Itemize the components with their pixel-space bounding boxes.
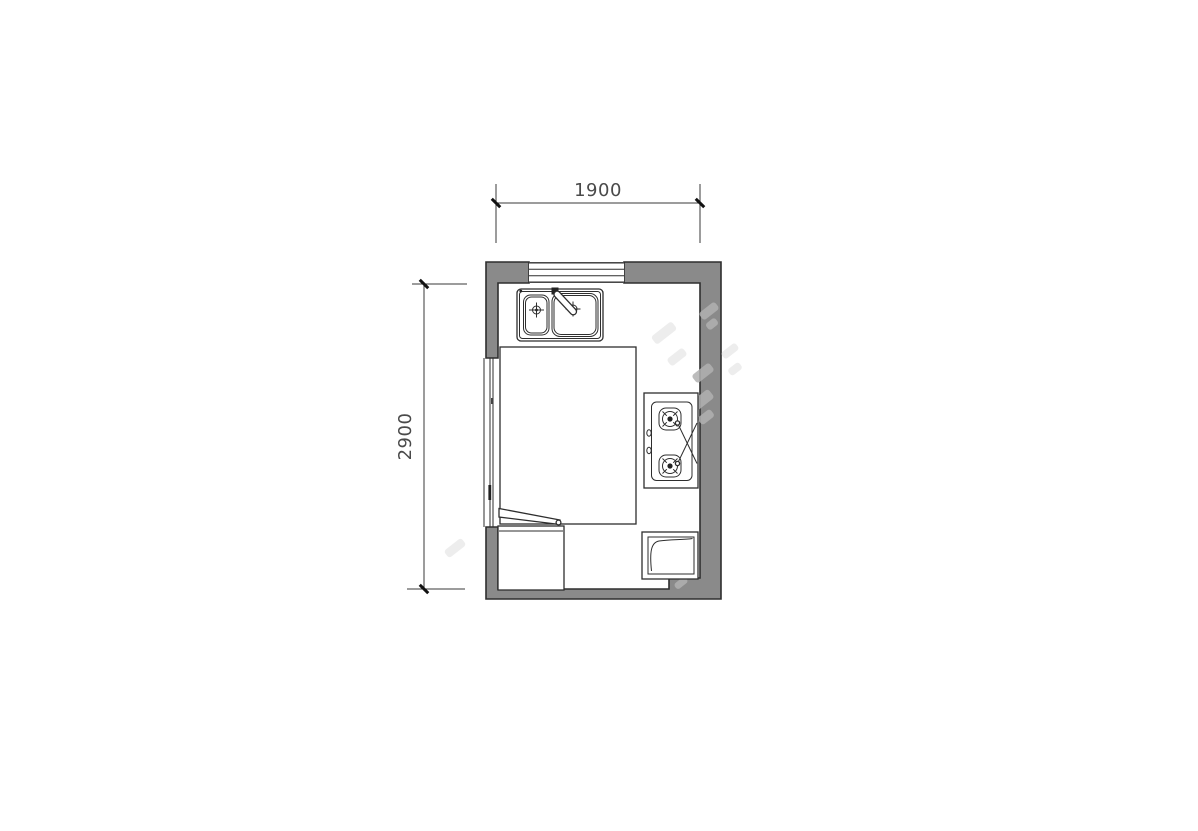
dimension-top: 1900 xyxy=(491,180,706,243)
dimension-height-value: 2900 xyxy=(395,413,416,461)
floor-plan-canvas: 1900 2900 xyxy=(0,0,1198,831)
appliance-box xyxy=(642,532,698,579)
base-cabinet xyxy=(498,526,564,590)
door-handle-mark xyxy=(488,485,491,500)
floor-plan-page: 1900 2900 xyxy=(0,0,1198,831)
door-leaf xyxy=(499,509,561,525)
dimension-width-value: 1900 xyxy=(574,180,622,201)
window-frame xyxy=(529,262,624,283)
kitchen-sink xyxy=(517,288,603,342)
counter-outline xyxy=(500,347,636,524)
sink-corner-dot xyxy=(519,290,522,293)
gas-cooktop xyxy=(644,393,698,488)
window xyxy=(529,262,624,283)
sliding-door xyxy=(484,358,493,527)
door-track-mark xyxy=(491,398,493,404)
